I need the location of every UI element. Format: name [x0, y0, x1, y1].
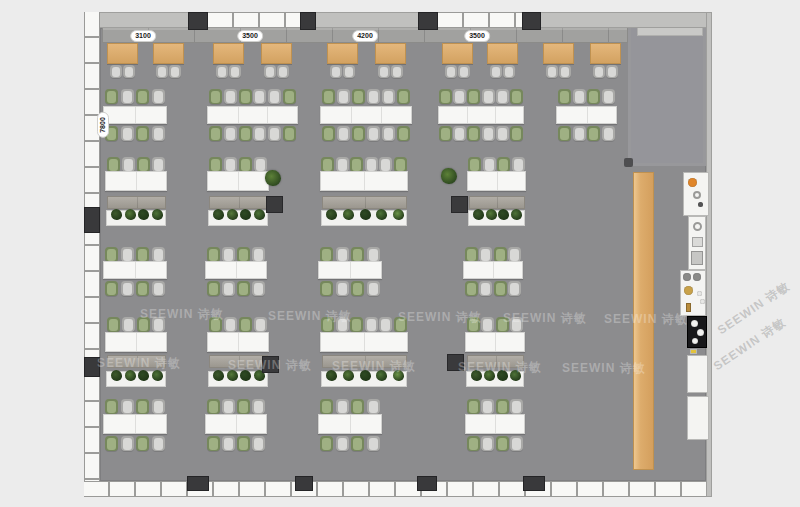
planter-plant: [213, 209, 224, 220]
table-seam: [467, 107, 468, 123]
bench-seam: [137, 197, 138, 208]
chair-green: [351, 247, 364, 262]
chair-grey: [152, 399, 165, 414]
lounge-table: [105, 332, 167, 352]
chair-green: [283, 126, 296, 141]
planter-plant: [254, 209, 265, 220]
lounge-table: [320, 332, 408, 352]
dining-table: [207, 106, 298, 124]
cafe-table: [327, 43, 358, 64]
chair-grey: [453, 126, 466, 141]
chair-grey: [229, 65, 241, 78]
chair-green: [465, 247, 478, 262]
chair-grey: [479, 281, 492, 296]
chair-grey: [367, 436, 380, 451]
chair-grey: [482, 126, 495, 141]
floorplan-image: 31003500420035007800SEEWIN 诗敏SEEWIN 诗敏SE…: [0, 0, 800, 507]
chair-green: [209, 89, 222, 104]
table-seam: [495, 333, 496, 351]
chair-green: [239, 157, 252, 172]
chair-grey: [122, 317, 135, 332]
chair-grey: [508, 247, 521, 262]
watermark: SEEWIN 诗敏: [228, 357, 312, 374]
chair-grey: [252, 399, 265, 414]
chair-grey: [330, 65, 342, 78]
chair-grey: [458, 65, 470, 78]
chair-grey: [169, 65, 181, 78]
appliance-rect-icon: [692, 237, 703, 247]
chair-green: [467, 399, 480, 414]
chair-green: [136, 247, 149, 262]
table-seam: [350, 262, 351, 278]
planter-plant: [125, 209, 136, 220]
chair-grey: [606, 65, 618, 78]
chair-green: [321, 157, 334, 172]
chair-grey: [391, 65, 403, 78]
chair-grey: [367, 399, 380, 414]
dining-table: [438, 106, 524, 124]
chair-green: [137, 157, 150, 172]
chair-grey: [367, 89, 380, 104]
table-seam: [238, 172, 239, 190]
chair-grey: [481, 399, 494, 414]
chair-grey: [382, 126, 395, 141]
chair-green: [237, 247, 250, 262]
dimension-label: 4200: [352, 30, 378, 42]
cafe-table: [442, 43, 473, 64]
appliance-ring-icon: [693, 191, 701, 199]
chair-green: [558, 126, 571, 141]
planter-plant: [393, 209, 404, 220]
bottom-wall-column: [295, 476, 313, 491]
chair-grey: [365, 157, 378, 172]
appliance-dot-icon: [683, 273, 691, 281]
chair-green: [136, 126, 149, 141]
top-window: [438, 12, 522, 28]
chair-green: [350, 157, 363, 172]
cafe-table: [590, 43, 621, 64]
dimension-label: 3100: [130, 30, 156, 42]
appliance-dot-icon: [688, 178, 697, 187]
chair-grey: [152, 436, 165, 451]
dining-table: [318, 414, 382, 434]
planter-plant: [326, 209, 337, 220]
chair-grey: [559, 65, 571, 78]
dining-table: [465, 414, 525, 434]
chair-green: [587, 89, 600, 104]
cafe-table: [543, 43, 574, 64]
chair-grey: [254, 157, 267, 172]
table-seam: [364, 333, 365, 351]
chair-green: [105, 89, 118, 104]
table-seam: [350, 415, 351, 433]
table-seam: [236, 262, 237, 278]
chair-grey: [510, 399, 523, 414]
appliance-dot-icon: [697, 329, 704, 336]
dining-table: [318, 261, 382, 279]
chair-grey: [337, 89, 350, 104]
watermark: SEEWIN 诗敏: [458, 359, 542, 376]
lounge-table: [467, 171, 526, 191]
chair-grey: [122, 157, 135, 172]
table-seam: [587, 107, 588, 123]
dining-table: [205, 261, 267, 279]
chair-green: [320, 436, 333, 451]
cafe-table: [261, 43, 292, 64]
chair-grey: [123, 65, 135, 78]
appliance-dot-icon: [700, 299, 705, 304]
chair-grey: [379, 317, 392, 332]
planter-plant: [138, 209, 149, 220]
chair-grey: [602, 89, 615, 104]
table-seam: [238, 333, 239, 351]
chair-grey: [496, 89, 509, 104]
planter-plant: [111, 209, 122, 220]
chair-grey: [378, 65, 390, 78]
chair-green: [496, 436, 509, 451]
chair-grey: [224, 89, 237, 104]
chair-green: [467, 126, 480, 141]
appliance-dot-icon: [684, 286, 693, 295]
planter-plant: [498, 209, 509, 220]
chair-green: [439, 89, 452, 104]
potted-plant: [441, 168, 457, 184]
table-seam: [135, 262, 136, 278]
chair-grey: [382, 89, 395, 104]
top-wall: [84, 12, 712, 28]
chair-green: [394, 157, 407, 172]
chair-grey: [121, 436, 134, 451]
chair-grey: [222, 436, 235, 451]
chair-grey: [482, 89, 495, 104]
chair-green: [467, 89, 480, 104]
chair-grey: [496, 126, 509, 141]
cafe-table: [487, 43, 518, 64]
chair-green: [283, 89, 296, 104]
table-seam: [497, 172, 498, 190]
planter-plant: [213, 370, 224, 381]
chair-green: [320, 399, 333, 414]
chair-grey: [252, 436, 265, 451]
chair-green: [510, 126, 523, 141]
kitchen-unit: [687, 355, 708, 393]
left-window-wall: [84, 12, 100, 497]
chair-green: [352, 126, 365, 141]
chair-grey: [593, 65, 605, 78]
chair-green: [351, 281, 364, 296]
table-seam: [136, 333, 137, 351]
dining-table: [320, 106, 412, 124]
cafe-table: [375, 43, 406, 64]
watermark: SEEWIN 诗敏: [332, 358, 416, 375]
watermark: SEEWIN 诗敏: [398, 309, 482, 326]
structural-column: [451, 196, 468, 213]
chair-grey: [252, 247, 265, 262]
chair-grey: [222, 247, 235, 262]
chair-grey: [121, 126, 134, 141]
chair-green: [397, 126, 410, 141]
bench-sofa: [469, 196, 525, 209]
planter-plant: [227, 209, 238, 220]
chair-grey: [224, 317, 237, 332]
chair-green: [105, 281, 118, 296]
chair-green: [209, 126, 222, 141]
appliance-rect-icon: [691, 251, 703, 265]
chair-grey: [156, 65, 168, 78]
appliance-dot-icon: [691, 320, 698, 327]
bottom-wall-column: [417, 476, 437, 491]
chair-grey: [110, 65, 122, 78]
chair-green: [587, 126, 600, 141]
chair-grey: [264, 65, 276, 78]
bench-seam: [497, 197, 498, 208]
chair-green: [497, 157, 510, 172]
bench-sofa: [107, 196, 166, 209]
planter-box: [321, 210, 407, 226]
chair-green: [237, 436, 250, 451]
top-wall-column: [418, 12, 438, 30]
chair-grey: [481, 436, 494, 451]
appliance-dot-icon: [692, 338, 698, 344]
planter-plant: [486, 209, 497, 220]
chair-grey: [479, 247, 492, 262]
chair-grey: [602, 126, 615, 141]
chair-grey: [252, 281, 265, 296]
chair-grey: [336, 436, 349, 451]
bottom-wall-column: [187, 476, 209, 491]
chair-green: [107, 157, 120, 172]
table-seam: [493, 262, 494, 278]
chair-green: [494, 281, 507, 296]
planter-plant: [473, 209, 484, 220]
dimension-label: 7800: [97, 112, 109, 138]
watermark: SEEWIN 诗敏: [604, 311, 688, 328]
bench-seam: [365, 197, 366, 208]
dining-table: [463, 261, 523, 279]
chair-grey: [445, 65, 457, 78]
chair-grey: [224, 126, 237, 141]
chair-green: [107, 317, 120, 332]
bench-sofa: [322, 196, 407, 209]
appliance-dot-icon: [698, 202, 703, 207]
chair-grey: [367, 281, 380, 296]
chair-grey: [152, 247, 165, 262]
chair-grey: [512, 157, 525, 172]
top-wall-column: [188, 12, 208, 30]
kitchen-unit: [680, 270, 706, 316]
appliance-ring-icon: [693, 222, 702, 231]
chair-green: [136, 436, 149, 451]
chair-grey: [216, 65, 228, 78]
chair-green: [397, 89, 410, 104]
lounge-table: [105, 171, 167, 191]
watermark: SEEWIN 诗敏: [268, 308, 352, 325]
appliance-dot-icon: [697, 291, 702, 296]
chair-grey: [336, 399, 349, 414]
watermark: SEEWIN 诗敏: [140, 306, 224, 323]
dining-table: [103, 106, 167, 124]
table-seam: [135, 415, 136, 433]
chair-green: [320, 247, 333, 262]
chair-green: [494, 247, 507, 262]
chair-green: [207, 436, 220, 451]
planter-plant: [152, 209, 163, 220]
chair-grey: [152, 157, 165, 172]
chair-grey: [573, 89, 586, 104]
table-seam: [238, 107, 239, 123]
chair-grey: [268, 126, 281, 141]
chair-green: [237, 281, 250, 296]
planter-plant: [360, 209, 371, 220]
chair-grey: [336, 157, 349, 172]
dining-table: [556, 106, 617, 124]
chair-green: [465, 281, 478, 296]
table-seam: [136, 172, 137, 190]
chair-grey: [222, 281, 235, 296]
planter-box: [106, 371, 166, 387]
table-seam: [267, 107, 268, 123]
chair-green: [351, 399, 364, 414]
wall-corner-post: [624, 158, 633, 167]
chair-grey: [121, 89, 134, 104]
bottom-window-wall: [84, 481, 712, 497]
lounge-table: [320, 171, 408, 191]
chair-grey: [152, 281, 165, 296]
potted-plant: [265, 170, 281, 186]
cafe-table: [153, 43, 184, 64]
chair-green: [105, 399, 118, 414]
chair-green: [136, 281, 149, 296]
planter-plant: [511, 209, 522, 220]
chair-grey: [481, 317, 494, 332]
chair-green: [207, 281, 220, 296]
chair-grey: [546, 65, 558, 78]
bench-seam: [239, 197, 240, 208]
planter-plant: [376, 209, 387, 220]
table-seam: [364, 172, 365, 190]
top-wall-column: [522, 12, 541, 30]
kitchen-unit: [687, 396, 709, 440]
table-seam: [135, 107, 136, 123]
chair-green: [239, 317, 252, 332]
chair-green: [136, 89, 149, 104]
lounge-table: [207, 171, 269, 191]
chair-grey: [152, 89, 165, 104]
chair-grey: [121, 281, 134, 296]
cafe-table: [107, 43, 138, 64]
watermark: SEEWIN 诗敏: [97, 355, 181, 372]
chair-grey: [253, 126, 266, 141]
chair-green: [558, 89, 571, 104]
kitchen-unit: [687, 316, 707, 348]
chair-green: [322, 126, 335, 141]
kitchen-unit: [683, 172, 709, 216]
top-window: [208, 12, 300, 28]
chair-grey: [343, 65, 355, 78]
dining-table: [103, 414, 167, 434]
dimension-label: 3500: [237, 30, 263, 42]
planter-box: [468, 210, 525, 226]
chair-green: [320, 281, 333, 296]
bottom-wall-column: [523, 476, 545, 491]
table-seam: [351, 107, 352, 123]
chair-green: [467, 436, 480, 451]
chair-grey: [367, 126, 380, 141]
table-seam: [495, 415, 496, 433]
chair-grey: [453, 89, 466, 104]
chair-green: [239, 89, 252, 104]
chair-grey: [254, 317, 267, 332]
chair-green: [207, 247, 220, 262]
chair-green: [237, 399, 250, 414]
table-seam: [236, 415, 237, 433]
appliance-dot-icon: [693, 273, 701, 281]
lounge-table: [207, 332, 269, 352]
table-seam: [495, 107, 496, 123]
chair-grey: [121, 247, 134, 262]
kitchen-unit: [690, 349, 697, 354]
chair-green: [496, 399, 509, 414]
kitchen-unit: [688, 216, 706, 270]
dining-table: [103, 261, 167, 279]
planter-plant: [240, 209, 251, 220]
chair-green: [351, 436, 364, 451]
top-wall-column: [300, 12, 316, 30]
dining-table: [205, 414, 267, 434]
chair-green: [136, 399, 149, 414]
chair-green: [105, 247, 118, 262]
planter-plant: [343, 209, 354, 220]
chair-grey: [503, 65, 515, 78]
chair-grey: [508, 281, 521, 296]
chair-grey: [573, 126, 586, 141]
lounge-table: [465, 332, 525, 352]
chair-grey: [152, 126, 165, 141]
watermark: SEEWIN 诗敏: [562, 360, 646, 377]
left-wall-column: [84, 207, 100, 233]
watermark: SEEWIN 诗敏: [503, 310, 587, 327]
planter-box: [208, 210, 268, 226]
chair-green: [207, 399, 220, 414]
chair-green: [352, 89, 365, 104]
planter-box: [106, 210, 166, 226]
structural-column: [266, 196, 283, 213]
chair-green: [322, 89, 335, 104]
table-seam: [381, 107, 382, 123]
chair-green: [209, 157, 222, 172]
chair-grey: [277, 65, 289, 78]
chair-green: [510, 89, 523, 104]
chair-grey: [483, 157, 496, 172]
chair-grey: [510, 436, 523, 451]
chair-grey: [253, 89, 266, 104]
chair-grey: [367, 247, 380, 262]
chair-grey: [336, 247, 349, 262]
bench-sofa: [209, 196, 268, 209]
chair-green: [350, 317, 363, 332]
chair-grey: [268, 89, 281, 104]
cafe-table: [213, 43, 244, 64]
chair-grey: [222, 399, 235, 414]
chair-grey: [121, 399, 134, 414]
chair-grey: [337, 126, 350, 141]
chair-grey: [365, 317, 378, 332]
chair-green: [439, 126, 452, 141]
chair-grey: [336, 281, 349, 296]
chair-green: [105, 436, 118, 451]
chair-green: [468, 157, 481, 172]
chair-grey: [224, 157, 237, 172]
